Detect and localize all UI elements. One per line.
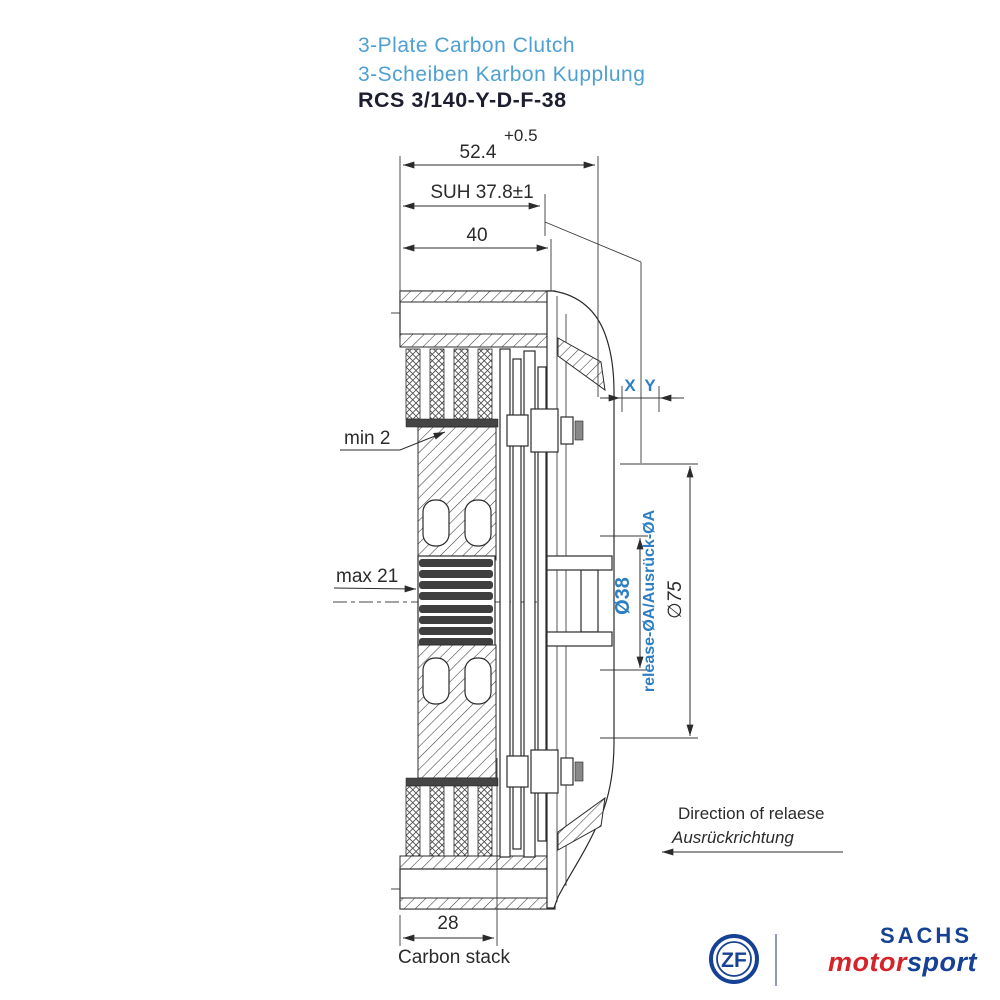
sachs-wordmark: SACHS xyxy=(880,923,972,948)
dim-suh: SUH 37.8±1 xyxy=(403,182,540,206)
release-flange-top xyxy=(547,556,612,570)
flywheel-rim-bottom-hatch xyxy=(400,898,555,909)
carbon-stack-width: 28 xyxy=(437,913,458,934)
lug-cutout xyxy=(423,658,449,704)
flywheel-rim-top-hatch xyxy=(400,291,555,302)
x-label: X xyxy=(624,376,636,395)
release-flange-bottom xyxy=(547,632,612,646)
dim-overall-width: 52.4 +0.5 xyxy=(403,126,595,165)
clutch-cross-section xyxy=(400,291,560,909)
outer-diameter-value: ∅75 xyxy=(665,581,686,619)
dim-max-21: max 21 xyxy=(334,566,416,589)
motorsport-blue-part: sport xyxy=(907,947,978,977)
top-hatch-band xyxy=(400,334,560,347)
dim-40: 40 xyxy=(403,225,548,248)
product-name-de: 3-Scheiben Karbon Kupplung xyxy=(358,63,645,86)
carbon-stack-label: Carbon stack xyxy=(398,947,510,968)
zf-logo: ZF xyxy=(711,936,757,982)
release-direction-note: Direction of relaese Ausrückrichtung xyxy=(662,804,843,852)
dim-suh-value: SUH 37.8±1 xyxy=(430,182,533,203)
spring-stack xyxy=(418,556,495,648)
brand-logo: ZF SACHS motorsport xyxy=(711,923,978,986)
dim-carbon-stack: 28 Carbon stack xyxy=(398,913,510,968)
lug-cutout xyxy=(465,658,491,704)
release-direction-de: Ausrückrichtung xyxy=(671,828,794,847)
y-label: Y xyxy=(644,376,656,395)
model-number: RCS 3/140-Y-D-F-38 xyxy=(358,88,567,112)
title-block: 3-Plate Carbon Clutch 3-Scheiben Karbon … xyxy=(358,34,645,112)
lug-cutout xyxy=(465,500,491,546)
release-sleeve xyxy=(581,570,598,632)
carbon-stack-top xyxy=(406,349,498,427)
motorsport-red-part: motor xyxy=(828,947,908,977)
lug-cutout xyxy=(423,500,449,546)
motorsport-wordmark: motorsport xyxy=(828,947,978,977)
dim-40-value: 40 xyxy=(466,225,487,246)
max-wear-label: max 21 xyxy=(336,566,398,587)
zf-monogram: ZF xyxy=(721,949,747,972)
release-diameter-note: release-ØA/Ausrück-ØA xyxy=(641,509,658,692)
dim-overall-width-value: 52.4 xyxy=(460,142,497,163)
release-direction-en: Direction of relaese xyxy=(678,804,824,823)
bottom-hatch-band xyxy=(400,856,560,869)
product-name-en: 3-Plate Carbon Clutch xyxy=(358,34,575,57)
drawing-sheet: 3-Plate Carbon Clutch 3-Scheiben Karbon … xyxy=(0,0,1000,1000)
technical-drawing: 3-Plate Carbon Clutch 3-Scheiben Karbon … xyxy=(0,0,1000,1000)
dim-tolerance: +0.5 xyxy=(504,126,538,145)
min-wear-label: min 2 xyxy=(344,428,390,449)
release-diameter-value: Ø38 xyxy=(612,577,634,615)
carbon-stack-bottom xyxy=(406,778,498,856)
